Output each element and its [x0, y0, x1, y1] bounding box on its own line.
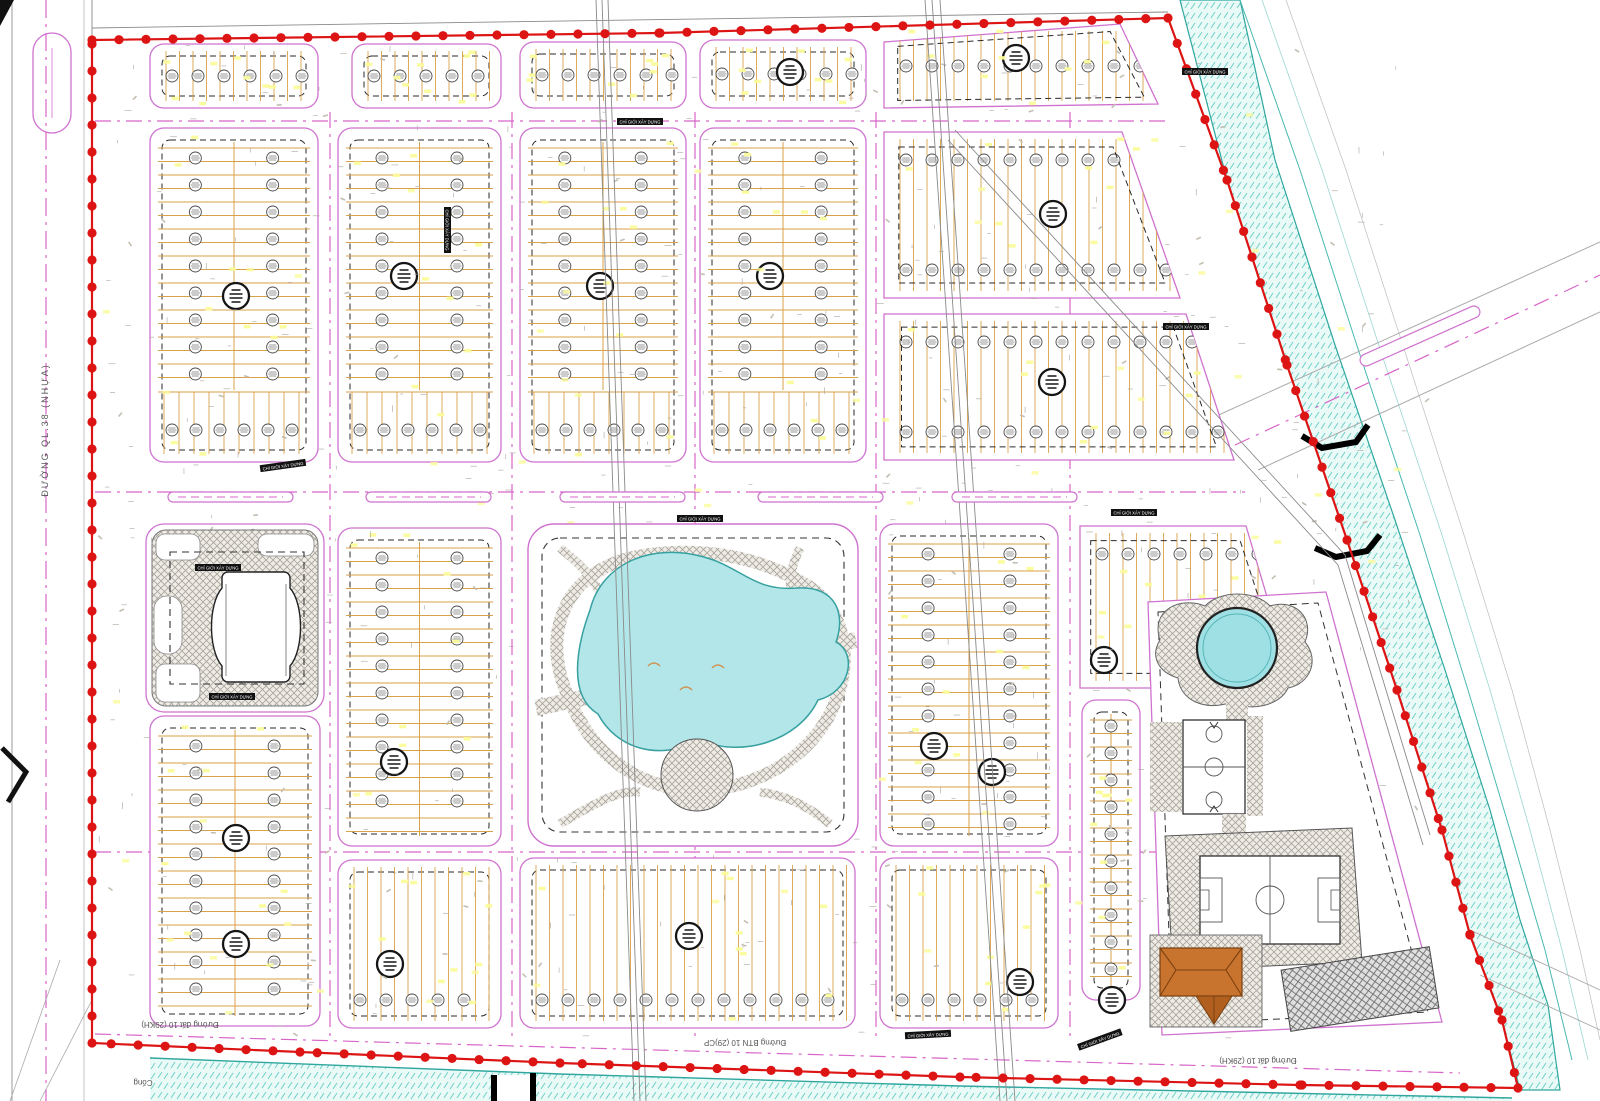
setback-tag: CHỈ GIỚI XÂY DỰNG	[905, 1030, 951, 1039]
lot-badge	[451, 579, 463, 591]
boundary-dot	[87, 93, 96, 102]
highlight-fleck	[539, 887, 546, 891]
highlight-fleck	[1009, 244, 1016, 248]
boundary-dot	[925, 20, 934, 29]
boundary-dot	[168, 34, 177, 43]
boundary-dot	[1239, 227, 1248, 236]
boundary-dot	[87, 822, 96, 831]
boundary-dot	[1494, 1006, 1503, 1015]
boundary-dot	[600, 29, 609, 38]
lot-badge	[267, 233, 279, 245]
highlight-fleck	[999, 56, 1006, 60]
highlight-fleck	[1090, 823, 1097, 827]
central-park	[528, 524, 858, 846]
boundary-dot	[1114, 15, 1123, 24]
lot-badge	[1030, 264, 1042, 276]
highlight-fleck	[773, 210, 780, 214]
lot-badge	[1004, 548, 1016, 560]
block-code-badge	[223, 931, 249, 957]
highlight-fleck	[739, 68, 746, 72]
boundary-dot	[87, 606, 96, 615]
highlight-fleck	[1145, 583, 1152, 587]
highlight-fleck	[1021, 372, 1028, 376]
lot-badge	[1004, 426, 1016, 438]
boundary-dot	[1033, 17, 1042, 26]
lot-badge	[836, 424, 848, 436]
master-plan-canvas: { "title": "Residential area detailed ma…	[0, 0, 1600, 1101]
block-strip-3	[520, 42, 686, 108]
lot-badge	[896, 994, 908, 1006]
road-label-bottom-left: Đường đất 10 (29KH)	[141, 1020, 219, 1029]
highlight-fleck	[1084, 60, 1091, 64]
highlight-fleck	[811, 419, 818, 423]
lot-badge	[267, 287, 279, 299]
boundary-dot	[87, 120, 96, 129]
highlight-fleck	[229, 267, 236, 271]
highlight-fleck	[263, 84, 270, 88]
highlight-fleck	[182, 725, 189, 729]
lot-badge	[267, 152, 279, 164]
block-b-c6	[1082, 700, 1140, 1000]
boundary-dot	[1335, 514, 1344, 523]
highlight-fleck	[199, 102, 206, 106]
highlight-fleck	[736, 931, 743, 935]
lot-badge	[815, 287, 827, 299]
boundary-dot	[87, 66, 96, 75]
road-medians	[168, 492, 1077, 502]
boundary-dot	[998, 1073, 1007, 1082]
boundary-dot	[87, 849, 96, 858]
highlight-fleck	[259, 904, 266, 908]
lot-badge	[451, 552, 463, 564]
highlight-fleck	[1085, 166, 1092, 170]
highlight-fleck	[1105, 793, 1112, 797]
canal-south	[150, 1058, 1512, 1101]
highlight-fleck	[1029, 102, 1036, 106]
boundary-dot	[87, 552, 96, 561]
highlight-fleck	[199, 452, 206, 456]
boundary-dot	[222, 34, 231, 43]
highlight-fleck	[630, 94, 637, 98]
highlight-fleck	[529, 73, 536, 77]
lot-badge	[716, 424, 728, 436]
highlight-fleck	[257, 727, 264, 731]
lot-badge	[635, 260, 647, 272]
lot-badge	[820, 68, 832, 80]
lot-badge	[1105, 882, 1117, 894]
boundary-dot	[655, 28, 664, 37]
highlight-fleck	[1090, 241, 1097, 245]
highlight-fleck	[744, 153, 751, 157]
highlight-fleck	[1117, 137, 1124, 141]
block-code-badge	[381, 749, 407, 775]
lot-badge	[1082, 336, 1094, 348]
lot-badge	[559, 341, 571, 353]
boundary-dot	[87, 147, 96, 156]
lot-badge	[376, 287, 388, 299]
lot-badge	[268, 902, 280, 914]
lot-badge	[451, 633, 463, 645]
lot-badge	[739, 341, 751, 353]
lot-badge	[1030, 336, 1042, 348]
boundary-dot	[1432, 1082, 1441, 1091]
lot-badge	[1108, 336, 1120, 348]
lot-badge	[189, 314, 201, 326]
lot-badge	[238, 424, 250, 436]
highlight-fleck	[815, 78, 822, 82]
boundary-dot	[87, 795, 96, 804]
boundary-dot	[87, 984, 96, 993]
boundary-dot	[107, 1039, 116, 1048]
highlight-fleck	[172, 97, 179, 101]
boundary-dot	[87, 957, 96, 966]
highlight-fleck	[1099, 776, 1106, 780]
boundary-dot	[1141, 14, 1150, 23]
lot-badge	[376, 606, 388, 618]
boundary-dot	[421, 1053, 430, 1062]
setback-tag-text: CHỈ GIỚI XÂY DỰNG	[619, 120, 660, 125]
boundary-dot	[87, 336, 96, 345]
highlight-fleck	[410, 154, 417, 158]
highlight-fleck	[754, 80, 761, 84]
block-code-badge	[223, 825, 249, 851]
lot-badge	[635, 152, 647, 164]
boundary-dot	[928, 1071, 937, 1080]
lot-badge	[1004, 336, 1016, 348]
boundary-dot	[1256, 278, 1265, 287]
boundary-dot	[394, 1052, 403, 1061]
lot-badge	[559, 260, 571, 272]
highlight-fleck	[918, 892, 925, 896]
highlight-fleck	[475, 963, 482, 967]
highlight-fleck	[915, 761, 922, 765]
boundary-dot	[901, 1071, 910, 1080]
lot-badge	[1030, 60, 1042, 72]
lot-badge	[451, 341, 463, 353]
highlight-fleck	[468, 50, 475, 54]
boundary-dot	[971, 1073, 980, 1082]
highlight-fleck	[184, 932, 191, 936]
lot-badge	[262, 424, 274, 436]
lot-badge	[640, 994, 652, 1006]
highlight-fleck	[191, 136, 198, 140]
lot-badge	[562, 994, 574, 1006]
boundary-dot	[709, 27, 718, 36]
culvert-label: Cống	[133, 1078, 152, 1087]
boundary-dot	[1079, 1075, 1088, 1084]
highlight-fleck	[401, 880, 408, 884]
boundary-dot	[955, 1072, 964, 1081]
boundary-dot	[161, 1042, 170, 1051]
lot-badge	[192, 70, 204, 82]
boundary-dot	[1326, 488, 1335, 497]
lot-badge	[900, 264, 912, 276]
boundary-dot	[1351, 1081, 1360, 1090]
boundary-dot	[871, 22, 880, 31]
boundary-dot	[1486, 1083, 1495, 1092]
lot-badge	[1056, 154, 1068, 166]
lot-badge	[978, 154, 990, 166]
highlight-fleck	[906, 167, 913, 171]
boundary-dot	[87, 768, 96, 777]
lot-badge	[922, 629, 934, 641]
highlight-fleck	[798, 49, 805, 53]
boundary-dot	[87, 1011, 96, 1020]
boundary-dot	[1187, 1078, 1196, 1087]
lot-badge	[978, 336, 990, 348]
block-b-r3c1	[150, 716, 320, 1026]
boundary-dot	[249, 33, 258, 42]
lot-badge	[451, 368, 463, 380]
lot-badge	[189, 260, 201, 272]
boundary-dot	[1342, 535, 1351, 544]
boundary-dot	[1160, 1077, 1169, 1086]
lot-badge	[451, 714, 463, 726]
highlight-fleck	[787, 381, 794, 385]
boundary-dot	[87, 876, 96, 885]
boundary-dot	[793, 1067, 802, 1076]
lot-badge	[270, 70, 282, 82]
highlight-fleck	[996, 30, 1003, 33]
block-code-badge	[1003, 45, 1029, 71]
lot-badge	[376, 206, 388, 218]
lot-badge	[1096, 548, 1108, 560]
lot-badge	[1082, 154, 1094, 166]
boundary-dot	[1210, 140, 1219, 149]
lot-badge	[560, 424, 572, 436]
highlight-fleck	[168, 769, 175, 773]
boundary-dot	[1309, 437, 1318, 446]
highlight-fleck	[820, 905, 827, 909]
boundary-dot	[573, 29, 582, 38]
lot-badge	[559, 206, 571, 218]
lot-badge	[1148, 548, 1160, 560]
boundary-dot	[1401, 711, 1410, 720]
lot-badge	[268, 740, 280, 752]
lot-badge	[788, 424, 800, 436]
boundary-dot	[474, 1055, 483, 1064]
highlight-fleck	[464, 737, 471, 741]
boundary-dot	[1173, 39, 1182, 48]
highlight-fleck	[244, 325, 251, 329]
soccer-field	[1200, 856, 1340, 944]
lot-badge	[559, 179, 571, 191]
lot-badge	[190, 983, 202, 995]
lot-badge	[1134, 264, 1146, 276]
boundary-dot	[1247, 252, 1256, 261]
highlight-fleck	[1043, 884, 1050, 888]
boundary-dot	[578, 1059, 587, 1068]
lot-badge	[764, 424, 776, 436]
boundary-dot	[1504, 1042, 1513, 1051]
boundary-dot	[87, 309, 96, 318]
highlight-fleck	[1091, 426, 1098, 430]
highlight-fleck	[1199, 595, 1206, 599]
highlight-fleck	[666, 435, 673, 439]
setback-tag: CHỈ GIỚI XÂY DỰNG	[617, 118, 663, 125]
lot-badge	[815, 260, 827, 272]
lot-badge	[1004, 818, 1016, 830]
lot-badge	[812, 424, 824, 436]
highlight-fleck	[746, 49, 753, 53]
lot-badge	[666, 994, 678, 1006]
block-code-badge	[1039, 369, 1065, 395]
boundary-dot	[632, 1061, 641, 1070]
highlight-fleck	[729, 1017, 736, 1021]
highlight-fleck	[422, 277, 429, 281]
lot-badge	[267, 341, 279, 353]
setback-tag-text: CHỈ GIỚI XÂY DỰNG	[1080, 1031, 1120, 1050]
boundary-dot	[1405, 1082, 1414, 1091]
highlight-fleck	[1232, 576, 1239, 580]
lot-badge	[244, 70, 256, 82]
boundary-dot	[87, 174, 96, 183]
lot-badge	[739, 233, 751, 245]
highlight-fleck	[410, 881, 417, 885]
boundary-dot	[686, 1063, 695, 1072]
setback-tag-text: CHỈ GIỚI XÂY DỰNG	[211, 695, 252, 700]
lot-badge	[815, 341, 827, 353]
lot-badge	[376, 233, 388, 245]
lot-badge	[268, 821, 280, 833]
boundary-dot	[1231, 201, 1240, 210]
setback-tag: CHỈ GIỚI XÂY DỰNG	[1111, 509, 1157, 516]
block-code-badge	[1091, 647, 1117, 673]
lot-badge	[1186, 426, 1198, 438]
lot-badge	[559, 314, 571, 326]
block-strip-2	[352, 44, 501, 108]
block-code-badge	[921, 733, 947, 759]
lot-badge	[190, 875, 202, 887]
highlight-fleck	[444, 572, 451, 576]
lot-badge	[267, 179, 279, 191]
highlight-fleck	[603, 281, 610, 285]
lot-badge	[451, 260, 463, 272]
lot-badge	[635, 206, 647, 218]
lot-badge	[608, 424, 620, 436]
boundary-dot	[87, 1038, 96, 1047]
block-b-r2c5a	[884, 132, 1180, 298]
lot-badge	[1108, 60, 1120, 72]
boundary-dot	[87, 930, 96, 939]
highlight-fleck	[175, 163, 182, 167]
highlight-fleck	[722, 872, 729, 876]
boundary-dot	[411, 31, 420, 40]
boundary-dot	[1300, 411, 1309, 420]
lot-badge	[739, 368, 751, 380]
highlight-fleck	[1098, 916, 1105, 920]
boundary-dot	[627, 29, 636, 38]
lot-badge	[166, 70, 178, 82]
lot-badge	[354, 994, 366, 1006]
highlight-fleck	[620, 207, 627, 211]
boundary-dot	[1459, 1083, 1468, 1092]
lot-badge	[432, 994, 444, 1006]
boundary-dot	[682, 28, 691, 37]
highlight-fleck	[411, 385, 418, 389]
lot-badge	[926, 264, 938, 276]
highlight-fleck	[943, 690, 950, 694]
highlight-fleck	[424, 89, 431, 93]
lot-badge	[922, 683, 934, 695]
boundary-dot	[1417, 763, 1426, 772]
highlight-fleck	[417, 63, 424, 67]
boundary-dot	[1214, 1078, 1223, 1087]
lot-badge	[268, 767, 280, 779]
lot-badge	[1000, 994, 1012, 1006]
highlight-fleck	[825, 994, 832, 998]
lot-badge	[1212, 426, 1224, 438]
lot-badge	[536, 424, 548, 436]
highlight-fleck	[1026, 360, 1033, 364]
lot-badge	[1200, 548, 1212, 560]
boundary-dot	[87, 903, 96, 912]
boundary-dot	[1268, 1080, 1277, 1089]
highlight-fleck	[740, 952, 747, 956]
boundary-dot	[1351, 561, 1360, 570]
highlight-fleck	[1102, 41, 1109, 45]
highlight-fleck	[469, 93, 476, 97]
boundary-dot	[367, 1050, 376, 1059]
highlight-fleck	[558, 162, 565, 166]
boundary-dot	[820, 1068, 829, 1077]
lot-badge	[900, 60, 912, 72]
lot-badge	[267, 260, 279, 272]
lot-badge	[978, 60, 990, 72]
lot-badge	[846, 68, 858, 80]
lot-badge	[718, 994, 730, 1006]
lot-badge	[692, 994, 704, 1006]
lot-badge	[922, 602, 934, 614]
lot-badge	[190, 902, 202, 914]
lot-badge	[451, 795, 463, 807]
block-code-badge	[757, 263, 783, 289]
highlight-fleck	[458, 100, 465, 104]
lot-badge	[474, 424, 486, 436]
lot-badge	[451, 233, 463, 245]
lot-badge	[189, 287, 201, 299]
lot-badge	[922, 548, 934, 560]
boundary-dot	[1006, 18, 1015, 27]
road-label-bottom-mid: Đường BTN 10 (29)CP	[704, 1038, 786, 1047]
boundary-dot	[763, 25, 772, 34]
highlight-fleck	[469, 1001, 476, 1005]
boundary-dot	[740, 1065, 749, 1074]
setback-tag: CHỈ GIỚI XÂY DỰNG	[1077, 1028, 1123, 1050]
lot-badge	[446, 70, 458, 82]
boundary-dot	[1295, 1080, 1304, 1089]
lot-badge	[166, 424, 178, 436]
road-label-highway: ĐƯỜNG QL.38 (NHỰA)	[40, 363, 50, 497]
lot-badge	[1134, 336, 1146, 348]
highlight-fleck	[1274, 540, 1281, 544]
setback-tag: CHỈ GIỚI XÂY DỰNG	[1163, 323, 1209, 330]
boundary-dot	[87, 633, 96, 642]
highlight-fleck	[727, 877, 734, 881]
highlight-fleck	[662, 54, 669, 58]
lot-badge	[1226, 548, 1238, 560]
boundary-dot	[241, 1045, 250, 1054]
lot-badge	[770, 994, 782, 1006]
lot-badge	[978, 426, 990, 438]
block-code-badge	[391, 263, 417, 289]
lot-badge	[815, 152, 827, 164]
lot-badge	[368, 70, 380, 82]
highlight-fleck	[351, 543, 358, 547]
highlight-fleck	[293, 86, 300, 90]
lot-badge	[614, 69, 626, 81]
boundary-dot	[1291, 386, 1300, 395]
